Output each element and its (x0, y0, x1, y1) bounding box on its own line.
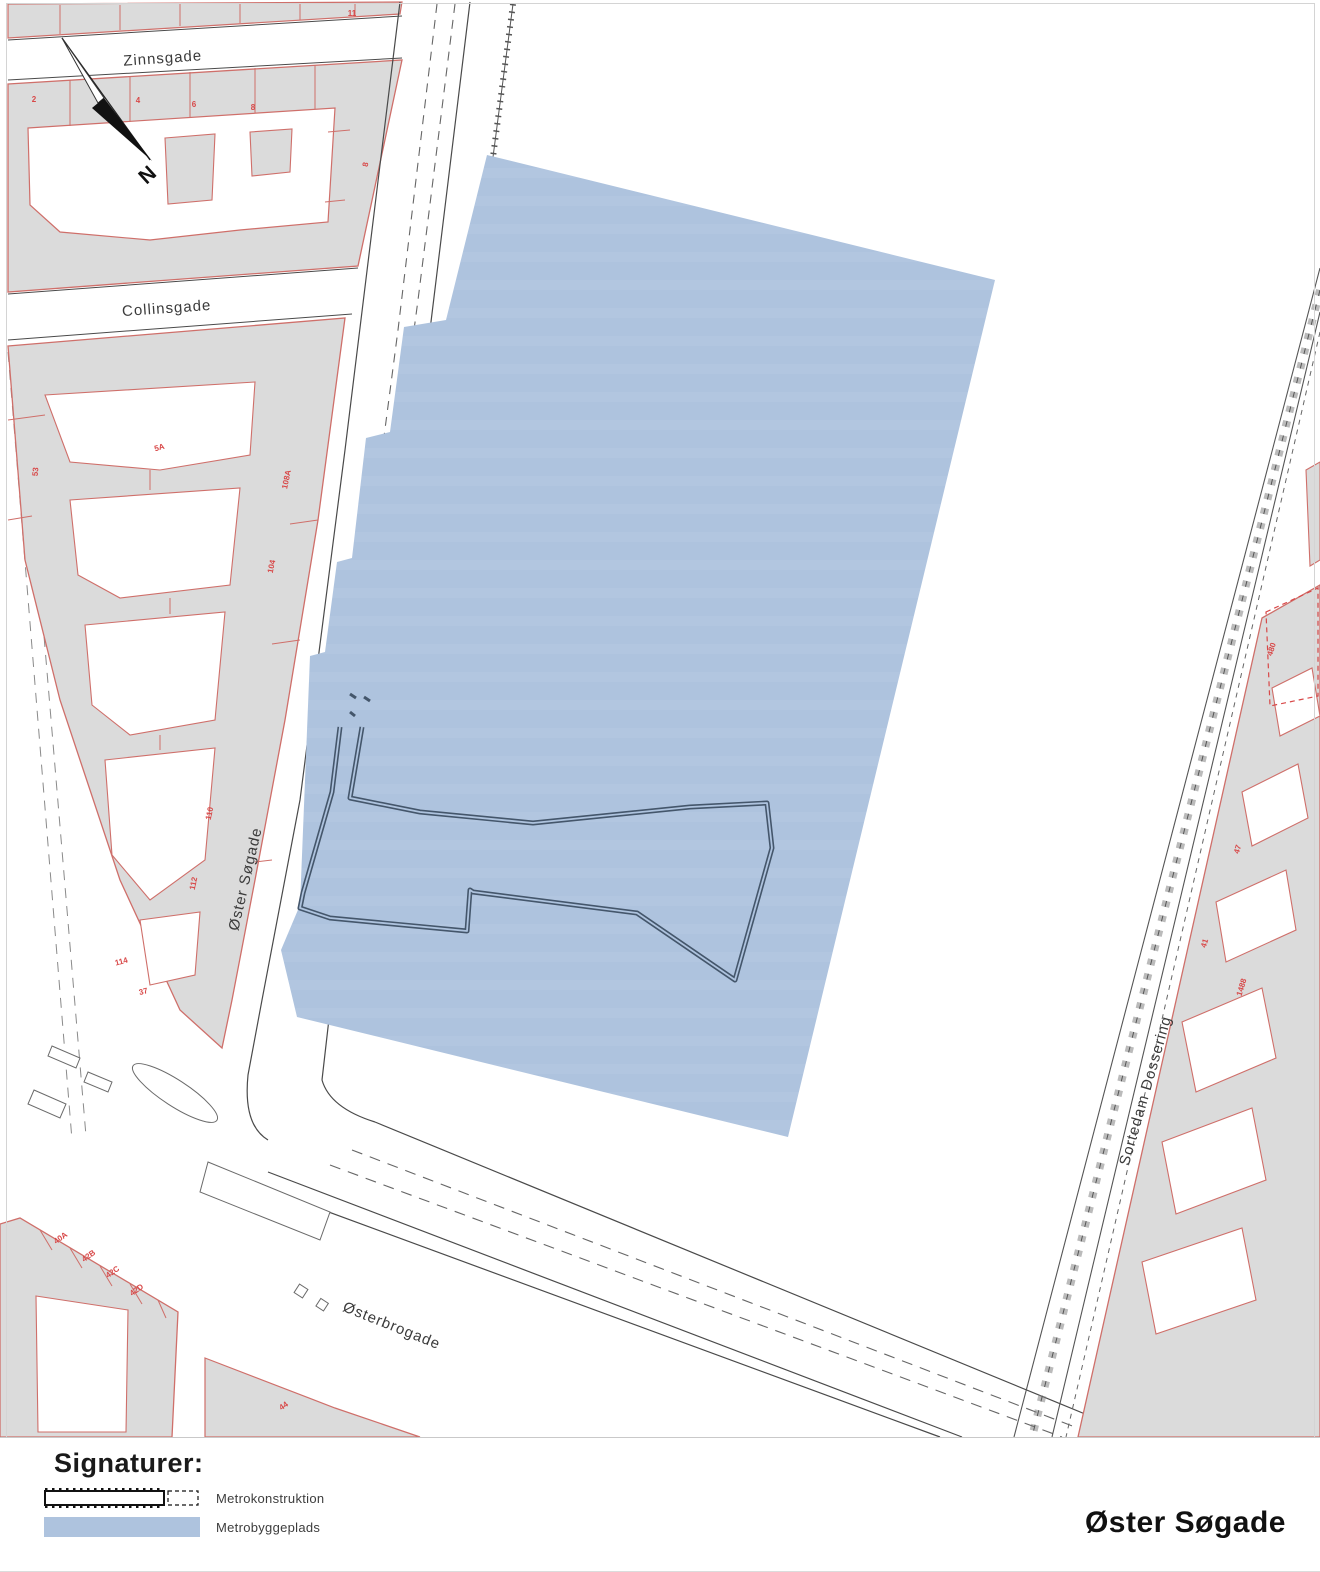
legend-item-metrokonstruktion: Metrokonstruktion (44, 1488, 324, 1508)
metro-site-swatch (44, 1517, 200, 1537)
courtyard (45, 382, 255, 470)
parcel-number: 4 (136, 96, 141, 105)
parcel-number: 6 (192, 100, 197, 109)
legend-panel: Signaturer: Metrokonstruktion Metrobygge… (0, 1437, 1320, 1572)
parcel-number: 53 (31, 466, 41, 476)
legend-item-metrobyggeplads: Metrobyggeplads (44, 1517, 320, 1537)
courtyard (70, 488, 240, 598)
metro-construction-symbol (44, 1488, 200, 1508)
parcel-number: 2 (32, 95, 37, 104)
legend-item-label: Metrobyggeplads (216, 1520, 320, 1535)
map-area: N Zinnsgade Collinsgade Øster Søgade Øst… (0, 0, 1320, 1440)
map-title: Øster Søgade (1085, 1506, 1286, 1540)
block-zinnsgade-collinsgade (8, 60, 402, 292)
parcel-number: 11 (348, 9, 357, 18)
courtyard (85, 612, 225, 735)
legend-heading: Signaturer: (54, 1448, 204, 1479)
courtyard (140, 912, 200, 985)
map-canvas: N Zinnsgade Collinsgade Øster Søgade Øst… (0, 0, 1320, 1440)
parcel-number: 8 (251, 103, 256, 112)
legend-item-label: Metrokonstruktion (216, 1491, 324, 1506)
courtyard (36, 1296, 128, 1432)
